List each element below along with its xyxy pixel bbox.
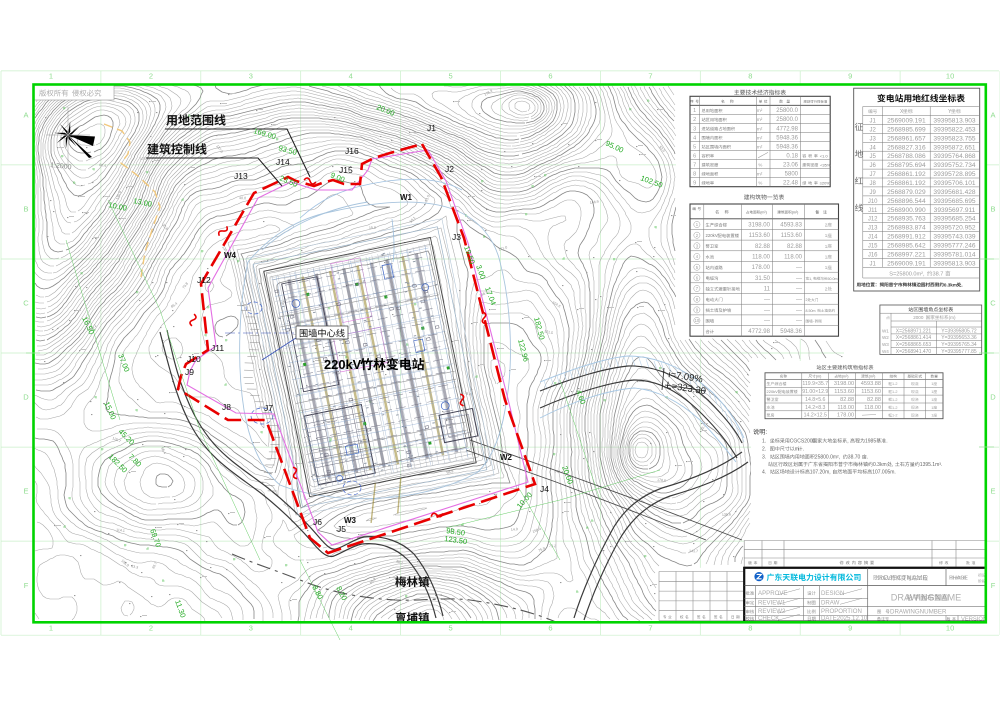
svg-text:2: 2	[806, 298, 808, 302]
svg-text:1.: 1.	[762, 439, 766, 445]
svg-text:J3: J3	[452, 232, 461, 242]
svg-text:X=2568865.653: X=2568865.653	[896, 342, 932, 348]
svg-text:8.50m: 8.50m	[806, 309, 816, 313]
svg-text:J6: J6	[870, 163, 877, 169]
svg-text:X=2568971.221: X=2568971.221	[896, 328, 932, 334]
svg-text:220kV: 220kV	[706, 233, 718, 238]
svg-text:A: A	[990, 111, 995, 120]
svg-text:39395685.695: 39395685.695	[933, 198, 976, 205]
svg-text:82.88: 82.88	[755, 244, 771, 250]
svg-text:A: A	[23, 111, 28, 120]
svg-text:118.00: 118.00	[837, 405, 854, 411]
svg-text:,: ,	[847, 439, 848, 445]
svg-text:1153.60: 1153.60	[781, 233, 803, 239]
svg-text:1-2: 1-2	[892, 406, 898, 410]
svg-text:38.70: 38.70	[848, 455, 861, 461]
svg-text:X=2568861.414: X=2568861.414	[896, 335, 932, 341]
svg-text:W1: W1	[882, 328, 889, 333]
svg-text:(m²): (m²)	[760, 211, 767, 215]
svg-text:171.8: 171.8	[140, 157, 149, 161]
svg-text:0.3km: 0.3km	[944, 282, 957, 287]
svg-text:1: 1	[931, 414, 933, 418]
svg-text:(m²): (m²)	[842, 375, 849, 379]
svg-text:DRAW: DRAW	[821, 599, 840, 606]
svg-text:—: —	[764, 308, 770, 314]
svg-text:—: —	[764, 319, 770, 325]
svg-text:—: —	[796, 276, 802, 282]
svg-text:2.: 2.	[762, 447, 766, 453]
svg-text:J12: J12	[868, 217, 878, 223]
svg-text:J14: J14	[276, 157, 290, 167]
svg-text:118.00: 118.00	[784, 255, 803, 261]
svg-text:135.6: 135.6	[722, 512, 731, 517]
svg-text:D: D	[23, 393, 29, 402]
svg-text:5948.36: 5948.36	[776, 144, 798, 150]
svg-text:1-2: 1-2	[892, 414, 898, 418]
svg-text:W4: W4	[224, 251, 237, 260]
svg-text:J6: J6	[313, 517, 322, 527]
svg-text:E: E	[23, 487, 28, 496]
svg-text:25800.0m²,: 25800.0m²,	[815, 455, 840, 461]
svg-text:1: 1	[825, 244, 828, 249]
svg-text:107.005m.: 107.005m.	[872, 470, 896, 476]
svg-text:C: C	[23, 299, 29, 308]
svg-text:—: —	[796, 297, 802, 303]
svg-text:(m²): (m²)	[792, 211, 799, 215]
svg-text:2: 2	[149, 624, 153, 633]
svg-text:J7: J7	[870, 172, 877, 178]
svg-text:178.00: 178.00	[752, 265, 771, 271]
svg-text:1: 1	[49, 624, 53, 633]
svg-text:J8: J8	[870, 181, 877, 187]
svg-text:8: 8	[748, 624, 752, 633]
svg-text:J1: J1	[870, 118, 877, 124]
svg-text:50.0m: 50.0m	[828, 277, 838, 281]
svg-text:.: .	[886, 439, 887, 445]
svg-text:3: 3	[693, 126, 696, 132]
svg-text:8: 8	[693, 171, 696, 177]
svg-text:S=25800.0m²,: S=25800.0m²,	[889, 272, 925, 278]
svg-text:m²: m²	[757, 144, 763, 149]
svg-text:2: 2	[693, 117, 696, 123]
svg-text:W2: W2	[882, 335, 889, 340]
svg-text:J12: J12	[197, 275, 211, 285]
svg-text:2569009.191: 2569009.191	[887, 260, 926, 267]
svg-text:10: 10	[695, 318, 700, 323]
svg-text:m²: m²	[757, 117, 763, 122]
svg-text:1: 1	[931, 406, 933, 410]
svg-text:7: 7	[693, 162, 696, 168]
svg-text:F: F	[24, 581, 29, 590]
svg-text:D: D	[990, 393, 996, 402]
svg-text:31.50: 31.50	[755, 276, 771, 282]
svg-text:178.6: 178.6	[657, 478, 666, 483]
svg-text:J5: J5	[870, 154, 877, 160]
svg-text:J16: J16	[345, 146, 359, 156]
svg-text:5800: 5800	[785, 171, 799, 177]
svg-text:J5: J5	[337, 524, 346, 534]
svg-text:2568961.657: 2568961.657	[887, 135, 926, 142]
svg-text:60.4: 60.4	[99, 163, 106, 168]
svg-text:2: 2	[149, 72, 153, 81]
svg-text:J2: J2	[870, 127, 877, 133]
svg-text:2568991.912: 2568991.912	[887, 234, 926, 241]
svg-text:8: 8	[748, 72, 752, 81]
svg-text:2568861.192: 2568861.192	[887, 180, 926, 187]
svg-text:4772.98: 4772.98	[776, 126, 798, 132]
svg-text:(m²): (m²)	[869, 375, 876, 379]
svg-text:—: —	[796, 287, 802, 293]
svg-text:Y=39395805.72: Y=39395805.72	[941, 328, 977, 334]
svg-text:.: .	[961, 282, 962, 287]
svg-text:39395752.734: 39395752.734	[933, 162, 976, 169]
svg-text:1-2: 1-2	[892, 390, 898, 394]
svg-text:6: 6	[548, 72, 552, 81]
svg-text:10: 10	[946, 624, 954, 633]
svg-text:1-2: 1-2	[892, 398, 898, 402]
svg-text:2568935.763: 2568935.763	[887, 216, 926, 223]
svg-text:22.48: 22.48	[783, 181, 799, 187]
svg-text:7: 7	[648, 72, 652, 81]
svg-text:B: B	[23, 205, 28, 214]
svg-text:5: 5	[449, 72, 453, 81]
svg-text:.: .	[803, 447, 804, 453]
svg-text:J4: J4	[540, 484, 549, 494]
svg-text:J11: J11	[211, 343, 224, 353]
svg-text:39395764.868: 39395764.868	[933, 153, 976, 160]
svg-text:14.2×8.3: 14.2×8.3	[805, 405, 825, 411]
svg-text:1395.1m³.: 1395.1m³.	[920, 462, 943, 468]
svg-text:39395706.101: 39395706.101	[933, 180, 976, 187]
svg-text:9: 9	[848, 72, 852, 81]
svg-text:m²: m²	[757, 126, 763, 131]
svg-text:W3: W3	[344, 516, 357, 525]
svg-text:2568827.316: 2568827.316	[887, 144, 926, 151]
svg-text:J16: J16	[868, 252, 878, 258]
svg-text:3198.00: 3198.00	[834, 381, 854, 387]
svg-text:PROPORTION: PROPORTION	[821, 608, 862, 615]
svg-text:82.88: 82.88	[840, 397, 854, 403]
svg-text:2568900.990: 2568900.990	[887, 207, 926, 214]
svg-text:14.9: 14.9	[511, 527, 518, 532]
svg-text:220kV: 220kV	[767, 389, 779, 394]
svg-text:1: 1	[931, 382, 933, 386]
svg-text:6: 6	[548, 624, 552, 633]
svg-text:(m): (m)	[949, 315, 956, 320]
svg-text:1,: 1,	[809, 277, 812, 281]
svg-text:J13: J13	[868, 226, 878, 232]
svg-text:73.2: 73.2	[549, 544, 556, 548]
svg-text::: :	[765, 429, 767, 436]
svg-text:J2: J2	[445, 164, 454, 174]
svg-text:2568896.544: 2568896.544	[887, 198, 926, 205]
svg-text:107.20m,: 107.20m,	[810, 470, 831, 476]
svg-text:3.: 3.	[762, 455, 766, 461]
svg-text:—: —	[796, 265, 802, 271]
svg-text:4772.98: 4772.98	[748, 329, 770, 335]
svg-text:39395822.453: 39395822.453	[933, 126, 976, 133]
svg-text:6: 6	[693, 153, 696, 159]
svg-text:39395728.895: 39395728.895	[933, 171, 976, 178]
svg-text:J1: J1	[870, 261, 877, 267]
svg-text:2568983.874: 2568983.874	[887, 225, 926, 232]
svg-text:m²: m²	[757, 172, 763, 177]
svg-text:<1.0: <1.0	[820, 153, 829, 158]
svg-text:J10: J10	[187, 354, 201, 364]
svg-text:≥20%: ≥20%	[820, 181, 831, 186]
svg-text:J7: J7	[264, 403, 273, 413]
svg-text:141.7: 141.7	[689, 549, 698, 553]
svg-text:1985: 1985	[865, 439, 876, 445]
svg-text:2568861.192: 2568861.192	[887, 171, 926, 178]
svg-text:J3: J3	[870, 136, 877, 142]
svg-text:C: C	[990, 299, 996, 308]
svg-text:14.2×12.5: 14.2×12.5	[804, 413, 827, 419]
svg-text:2568795.694: 2568795.694	[887, 162, 926, 169]
svg-text:4: 4	[693, 135, 696, 141]
svg-text:4593.88: 4593.88	[861, 381, 881, 387]
svg-text:CGCS2000: CGCS2000	[790, 439, 816, 445]
svg-text:J13: J13	[234, 171, 248, 181]
svg-text:0.18: 0.18	[786, 153, 798, 159]
svg-text:W1: W1	[400, 193, 413, 202]
svg-text:m: m	[795, 447, 799, 453]
svg-text:Y=39395777.85: Y=39395777.85	[941, 349, 977, 355]
svg-text:J14: J14	[868, 235, 878, 241]
svg-text:38.7: 38.7	[933, 272, 944, 278]
svg-text:2568879.029: 2568879.029	[887, 189, 926, 196]
svg-text:1: 1	[49, 72, 53, 81]
svg-text:39395743.039: 39395743.039	[933, 234, 976, 241]
svg-text:<35%: <35%	[820, 162, 831, 167]
svg-text:1: 1	[931, 390, 933, 394]
svg-text:W3: W3	[882, 342, 889, 347]
svg-text:—: —	[796, 319, 802, 325]
svg-text:3198.00: 3198.00	[748, 222, 770, 228]
svg-text:J4: J4	[870, 145, 877, 151]
svg-text:39395781.014: 39395781.014	[933, 251, 976, 258]
svg-text:25800.0: 25800.0	[776, 117, 798, 123]
svg-text:15.8: 15.8	[369, 226, 376, 230]
svg-text:39395697.911: 39395697.911	[934, 207, 976, 214]
svg-text:178.00: 178.00	[837, 413, 854, 419]
svg-text:F: F	[991, 581, 996, 590]
svg-text:1153.60: 1153.60	[749, 233, 771, 239]
svg-text:9: 9	[848, 624, 852, 633]
svg-text:9: 9	[693, 181, 696, 187]
svg-text:1: 1	[931, 398, 933, 402]
svg-text:39395813.903: 39395813.903	[933, 117, 976, 124]
svg-text:0.3km: 0.3km	[873, 462, 887, 468]
svg-text:5: 5	[693, 144, 696, 150]
svg-text:W4: W4	[882, 349, 889, 354]
svg-text:1: 1	[825, 265, 828, 270]
svg-text:Y=39395653.36: Y=39395653.36	[941, 335, 977, 341]
svg-text:5948.36: 5948.36	[776, 135, 798, 141]
svg-text:7: 7	[648, 624, 652, 633]
svg-text:J11: J11	[868, 208, 878, 214]
svg-text:PHASE: PHASE	[949, 576, 968, 582]
svg-text:2000: 2000	[913, 315, 924, 320]
svg-text:1153.60: 1153.60	[834, 389, 854, 395]
svg-text:39395685.254: 39395685.254	[933, 216, 976, 223]
svg-text:J9: J9	[185, 367, 194, 377]
svg-text:%: %	[758, 181, 762, 186]
svg-text:118.00: 118.00	[864, 405, 881, 411]
svg-text:3: 3	[249, 624, 253, 633]
svg-text:4: 4	[349, 72, 353, 81]
svg-text:DESIGN: DESIGN	[821, 590, 844, 597]
svg-text:(m): (m)	[816, 375, 822, 379]
svg-text:220kV: 220kV	[875, 576, 891, 582]
svg-text:J9: J9	[870, 190, 877, 196]
svg-text:%: %	[758, 162, 762, 167]
svg-text:5948.36: 5948.36	[780, 329, 802, 335]
svg-text:B: B	[990, 205, 995, 214]
svg-text:m²: m²	[757, 135, 763, 140]
svg-text:X=2568941.470: X=2568941.470	[896, 349, 932, 355]
svg-text:—: —	[796, 308, 802, 314]
svg-text:118.00: 118.00	[752, 255, 771, 261]
svg-text:1: 1	[825, 255, 828, 260]
svg-text:82.88: 82.88	[787, 244, 803, 250]
svg-text:4593.83: 4593.83	[780, 222, 802, 228]
svg-text:4: 4	[349, 624, 353, 633]
svg-text:220kV: 220kV	[324, 357, 362, 372]
svg-text:1153.60: 1153.60	[861, 389, 881, 395]
svg-text:2568997.221: 2568997.221	[887, 251, 926, 258]
svg-text:1-2: 1-2	[892, 382, 898, 386]
svg-text:,: ,	[892, 462, 893, 468]
svg-text:23.06: 23.06	[783, 162, 799, 168]
svg-text:.: .	[867, 455, 868, 461]
svg-text:2568788.086: 2568788.086	[887, 153, 926, 160]
svg-text:1: 1	[693, 108, 696, 114]
svg-text:2: 2	[825, 287, 828, 292]
svg-text:J10: J10	[868, 199, 878, 205]
svg-text:J1: J1	[427, 123, 436, 133]
svg-text:2: 2	[825, 223, 828, 228]
svg-text:11: 11	[764, 287, 771, 293]
svg-text:39395813.903: 39395813.903	[933, 260, 976, 267]
svg-text:40.0: 40.0	[239, 196, 246, 200]
svg-text:1: 1	[825, 233, 828, 238]
svg-text:4.: 4.	[762, 470, 766, 476]
svg-text:82.88: 82.88	[867, 397, 881, 403]
svg-text:25800.0: 25800.0	[776, 108, 798, 114]
svg-text:39395872.651: 39395872.651	[933, 144, 976, 151]
svg-text:W2: W2	[500, 453, 513, 462]
svg-text:3: 3	[249, 72, 253, 81]
svg-text:—: —	[764, 297, 770, 303]
svg-text:91.00×12.9: 91.00×12.9	[802, 389, 828, 395]
svg-text:39395681.428: 39395681.428	[933, 189, 976, 196]
svg-text:REVIEW2: REVIEW2	[758, 608, 786, 615]
svg-text:2568985.642: 2568985.642	[887, 242, 926, 249]
svg-text:E: E	[990, 487, 995, 496]
svg-text:39395777.246: 39395777.246	[933, 242, 976, 249]
svg-text:39395720.952: 39395720.952	[933, 225, 976, 232]
svg-text:Y=39395765.34: Y=39395765.34	[941, 342, 977, 348]
svg-text:10: 10	[946, 72, 954, 81]
svg-text:J8: J8	[222, 402, 231, 412]
svg-text:J15: J15	[868, 243, 878, 249]
svg-text:119.9×35.7: 119.9×35.7	[802, 381, 828, 387]
svg-text:5: 5	[449, 624, 453, 633]
svg-text:DRAWINGNUMBER: DRAWINGNUMBER	[890, 608, 947, 615]
svg-text:2568985.699: 2568985.699	[887, 126, 926, 133]
svg-text:REVIEW1: REVIEW1	[758, 599, 786, 606]
svg-text:14.8×5.6: 14.8×5.6	[805, 397, 825, 403]
svg-text:m²: m²	[757, 108, 763, 113]
svg-text:39395823.755: 39395823.755	[933, 135, 976, 142]
svg-text:2569009.191: 2569009.191	[887, 117, 926, 124]
